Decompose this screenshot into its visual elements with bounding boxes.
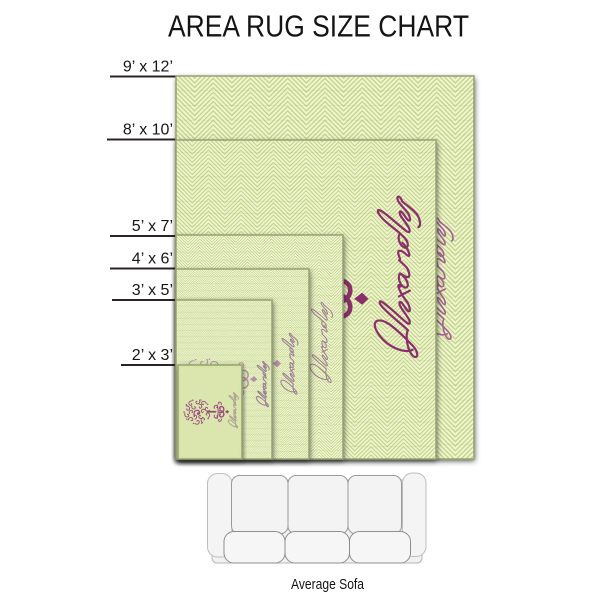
svg-text:9’ x 12’: 9’ x 12’ xyxy=(123,59,173,76)
svg-text:AREA RUG SIZE CHART: AREA RUG SIZE CHART xyxy=(168,9,469,44)
svg-text:Average Sofa: Average Sofa xyxy=(291,577,365,593)
svg-text:2’ x 3’: 2’ x 3’ xyxy=(132,347,173,364)
svg-text:3’ x 5’: 3’ x 5’ xyxy=(132,282,173,299)
svg-text:8’ x 10’: 8’ x 10’ xyxy=(123,122,173,139)
svg-text:4’ x 6’: 4’ x 6’ xyxy=(132,251,173,268)
svg-text:5’ x 7’: 5’ x 7’ xyxy=(132,218,173,235)
